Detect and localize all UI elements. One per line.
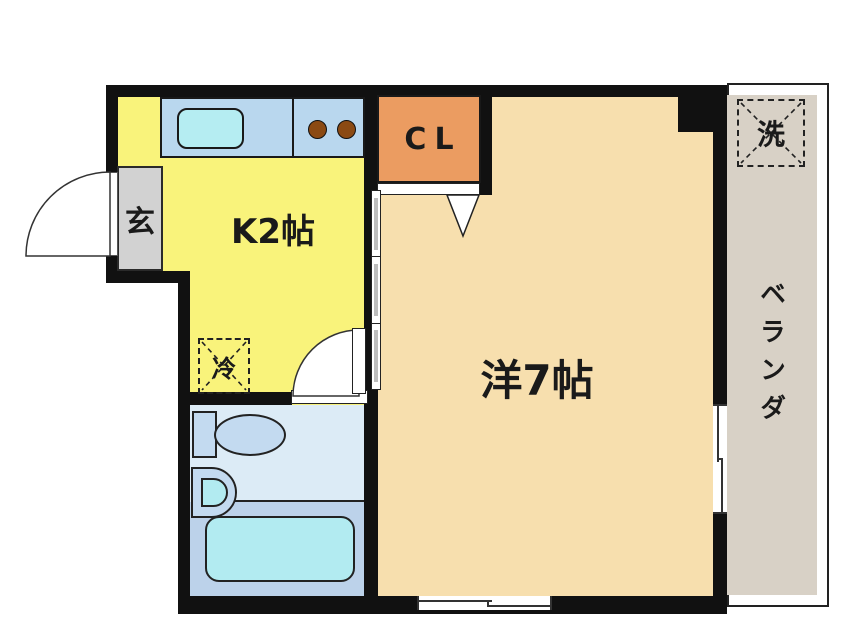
- window-frame-line: [713, 512, 727, 514]
- floorplan-canvas: 洗 ベランダ CL 玄 冷: [0, 0, 846, 634]
- wall-closet-right: [480, 85, 492, 195]
- washer-space-label: 洗: [737, 99, 805, 167]
- window-frame-line: [417, 596, 419, 610]
- stove-burner-left: [308, 120, 327, 139]
- bathroom-door-swing-arc: [292, 329, 361, 398]
- sliding-door-panel: [372, 191, 380, 257]
- closet-door-swing-marker: [445, 194, 481, 238]
- entrance-label: 玄: [125, 197, 155, 241]
- window-glass-line: [417, 600, 492, 602]
- sliding-door-kitchen-main: [371, 190, 381, 390]
- wall-left-upper: [106, 85, 118, 172]
- window-frame-line: [487, 600, 489, 607]
- window-frame-line: [717, 458, 723, 460]
- entrance-area: 玄: [117, 166, 163, 271]
- toilet-bowl: [214, 414, 286, 456]
- kitchen-label: K2帖: [193, 203, 353, 253]
- entry-door-swing-arc: [20, 168, 112, 260]
- sliding-door-panel: [372, 257, 380, 323]
- stove-burner-right: [337, 120, 356, 139]
- window-frame-line: [713, 404, 727, 406]
- counter-divider-line: [292, 97, 294, 158]
- closet-box: CL: [377, 95, 481, 183]
- window-east: [713, 404, 727, 514]
- wall-right: [713, 85, 727, 597]
- kitchen-sink: [177, 108, 244, 149]
- closet-label: CL: [404, 122, 461, 157]
- bathtub: [205, 516, 355, 582]
- bathroom-door-leaf: [352, 328, 366, 394]
- window-frame-line: [550, 596, 552, 610]
- refrigerator-space-label: 冷: [198, 338, 250, 394]
- window-south: [417, 596, 552, 610]
- main-room-label: 洋7帖: [447, 349, 627, 405]
- wall-left-step: [178, 271, 190, 614]
- window-glass-line: [487, 605, 552, 607]
- window-glass-line: [721, 458, 723, 514]
- bathroom-divider-line: [233, 500, 364, 502]
- window-glass-line: [717, 404, 719, 462]
- sliding-door-panel: [372, 324, 380, 389]
- balcony-label: ベランダ: [754, 256, 788, 456]
